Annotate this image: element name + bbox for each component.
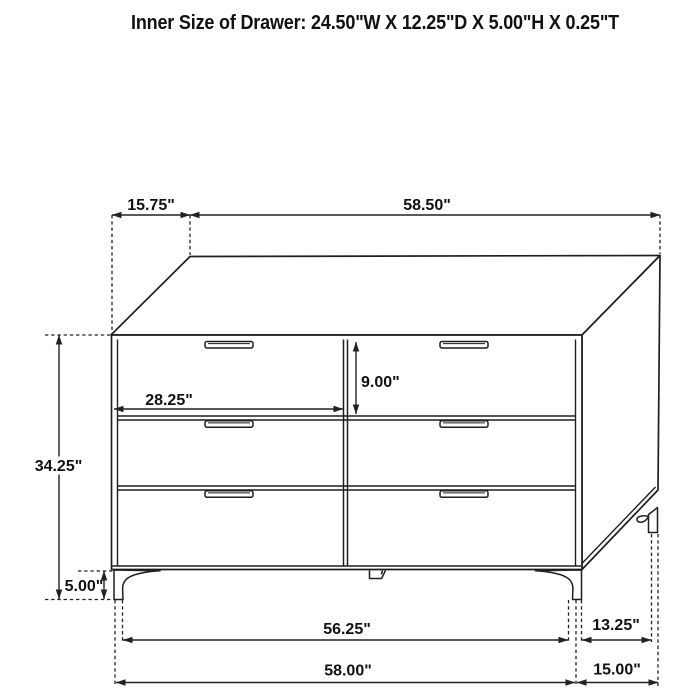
drawer-handle-middle-right [440,421,488,428]
dresser-top-face [111,256,660,336]
dim-label-top-width: 58.50" [403,197,451,214]
drawer-handle-bottom-left [205,491,253,498]
furniture-dimension-diagram: Inner Size of Drawer: 24.50"W X 12.25"D … [0,0,700,700]
drawer-handle-bottom-right [440,491,488,498]
center-glide [370,571,386,579]
dim-label-drawer-height: 9.00" [361,374,400,391]
dim-label-cabinet-height: 34.25" [35,458,83,475]
dim-label-drawer-width: 28.25" [145,392,193,409]
drawer-handle-top-left [205,342,253,349]
dresser-drawing [111,256,660,600]
dim-label-front-leg-span: 56.25" [323,621,371,638]
drawer-handle-top-right [440,342,488,349]
front-right-leg [536,570,582,600]
diagram-title: Inner Size of Drawer: 24.50"W X 12.25"D … [131,12,619,34]
rear-right-leg-scroll [637,516,649,522]
dim-label-overall-depth: 15.00" [593,662,641,679]
diagram-page: Inner Size of Drawer: 24.50"W X 12.25"D … [0,0,700,700]
dim-label-top-depth: 15.75" [127,197,175,214]
front-left-leg [114,570,160,600]
drawer-handle-middle-left [205,421,253,428]
dim-label-leg-height: 5.00" [65,578,104,595]
dim-label-overall-width: 58.00" [324,663,372,680]
dim-label-side-leg-span: 13.25" [592,617,640,634]
rear-right-leg [649,508,658,533]
